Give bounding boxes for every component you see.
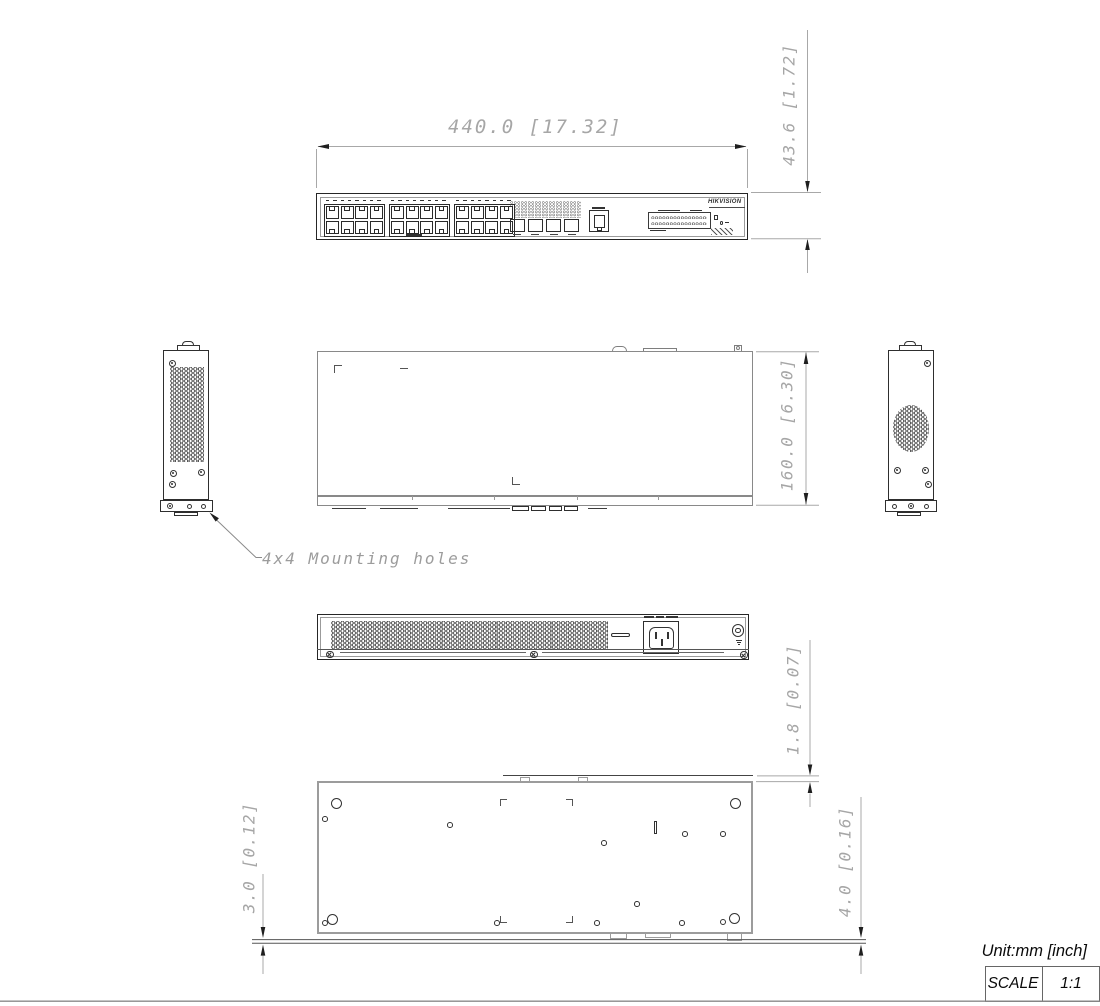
rear-screw-left <box>326 651 334 659</box>
top-view-front-strip <box>317 496 753 506</box>
left-side-top-tab <box>177 345 200 351</box>
rj45-port <box>355 221 368 234</box>
console-port-tab <box>597 227 602 231</box>
dim-bracket-label: 3.0 [0.12] <box>240 793 259 923</box>
bottom-hole-br-small <box>720 919 726 925</box>
bottom-mark-bl <box>500 916 507 923</box>
rj45-port <box>391 221 404 234</box>
right-screw-4 <box>925 481 932 488</box>
rear-screw-center <box>530 651 538 659</box>
bottom-slot <box>654 821 657 835</box>
rear-lip-line <box>317 649 749 650</box>
rj45-port <box>471 206 484 219</box>
port-number-smudge <box>391 200 394 202</box>
rj45-port <box>326 206 339 219</box>
power-indicator-icon <box>720 221 724 225</box>
right-side-vent <box>893 405 930 452</box>
port-number-smudge <box>463 200 466 202</box>
rear-recess-left <box>340 652 526 653</box>
ac-pin-left <box>655 632 657 639</box>
bottom-mark-tl <box>500 799 507 806</box>
right-screw-1 <box>924 360 931 367</box>
bottom-lip-line <box>503 775 753 776</box>
scale-label: SCALE <box>984 975 1042 993</box>
rj45-port <box>420 206 433 219</box>
rear-recess-right <box>542 652 724 653</box>
bottom-hole-bl-small <box>322 920 328 926</box>
port-number-smudge <box>456 200 459 202</box>
rj45-port <box>341 221 354 234</box>
bottom-hole-1 <box>322 816 328 822</box>
sfp-label-smudge <box>568 234 576 235</box>
top-view-outline <box>317 351 753 496</box>
rj45-port <box>406 221 419 234</box>
port-number-smudge <box>420 200 423 202</box>
left-screw-2 <box>170 470 177 477</box>
left-screw-3 <box>198 469 205 476</box>
dim-foot-label: 4.0 [0.16] <box>836 797 855 927</box>
rj45-port <box>485 206 498 219</box>
left-screw-1 <box>169 360 176 367</box>
led-row-bottom <box>651 222 707 226</box>
bottom-mark-br <box>566 916 573 923</box>
power-rating-smudge-2 <box>656 616 664 618</box>
rear-vent <box>331 621 608 650</box>
rj45-port <box>420 221 433 234</box>
rj45-port <box>435 221 448 234</box>
left-foot <box>174 512 198 516</box>
right-screw-3 <box>922 467 929 474</box>
rj45-port <box>370 206 383 219</box>
top-edge-screw-circle <box>736 346 740 350</box>
rj45-port <box>341 206 354 219</box>
rear-vent-divider-1 <box>386 621 387 650</box>
left-side-top-bump <box>182 341 194 345</box>
rj45-port <box>355 206 368 219</box>
top-mark-corner-1 <box>334 365 342 373</box>
port-number-smudge <box>406 200 409 202</box>
bottom-hole-7 <box>594 920 600 926</box>
ac-pin-center <box>661 639 663 646</box>
model-text-smudge <box>709 207 745 209</box>
left-flange-hole-1 <box>187 504 192 509</box>
right-side-top-tab <box>899 345 922 351</box>
bottom-foot-bump-3 <box>727 934 742 942</box>
strip-mark-4 <box>588 508 607 510</box>
dim-lip-extension-lines <box>756 776 819 782</box>
dim-depth-label: 160.0 [6.30] <box>778 350 797 500</box>
strip-tick-4 <box>658 496 659 500</box>
led-mode-square <box>714 215 719 220</box>
port-number-smudge <box>471 200 474 202</box>
strip-mark-3 <box>448 508 510 510</box>
rear-screw-right <box>740 651 748 659</box>
rj45-port <box>485 221 498 234</box>
right-foot <box>897 512 921 516</box>
rj45-port <box>326 221 339 234</box>
power-rating-smudge-3 <box>666 616 678 618</box>
port-number-smudge <box>377 200 380 202</box>
dim-width-extension-lines <box>317 149 748 188</box>
front-vent-dot-grid <box>510 201 581 218</box>
rj45-port <box>370 221 383 234</box>
unit-label: Unit:mm [inch] <box>955 942 1087 962</box>
ground-symbol-2 <box>737 642 741 643</box>
dim-height-extension-lines <box>751 193 821 239</box>
led-label-smudge-1 <box>658 210 680 211</box>
ground-symbol-1 <box>736 640 742 641</box>
dim-width-label: 440.0 [17.32] <box>448 116 608 136</box>
bottom-hole-2 <box>447 822 453 828</box>
rear-vent-divider-4 <box>551 621 552 650</box>
ground-symbol-3 <box>738 644 740 645</box>
technical-drawing-sheet: HIKVISION <box>0 0 1100 1006</box>
port-number-smudge <box>493 200 496 202</box>
bottom-bracket-lines <box>252 940 866 944</box>
port-number-smudge <box>370 200 373 202</box>
port-number-smudge <box>413 200 416 202</box>
power-indicator-dash <box>725 222 729 223</box>
rj45-port <box>456 206 469 219</box>
right-screw-2 <box>894 467 901 474</box>
strip-tick-2 <box>494 496 495 500</box>
bottom-hole-3 <box>601 840 607 846</box>
leader-line <box>214 518 262 558</box>
led-label-smudge-3 <box>650 230 666 231</box>
rj45-port <box>456 221 469 234</box>
rj45-port <box>500 206 513 219</box>
dim-lip-label: 1.8 [0.07] <box>784 635 803 765</box>
left-screw-4 <box>169 481 176 488</box>
strip-box-1 <box>512 506 529 511</box>
brand-logo: HIKVISION <box>708 199 748 206</box>
led-label-smudge-2 <box>690 210 702 211</box>
port-number-smudge <box>435 200 438 202</box>
strip-box-4 <box>564 506 578 511</box>
rear-slot <box>611 633 630 637</box>
port-number-smudge <box>333 200 336 202</box>
top-edge-bump <box>612 346 627 351</box>
console-label-smudge <box>592 207 605 209</box>
bottom-foot-hole-tr <box>730 798 741 809</box>
bottom-mark-tr <box>566 799 573 806</box>
bottom-foot-hole-br <box>729 913 740 924</box>
port-number-smudge <box>398 200 401 202</box>
port-number-smudge <box>363 200 366 202</box>
bottom-foot-hole-tl <box>331 798 342 809</box>
right-flange-hole-1 <box>892 504 897 509</box>
port-number-smudge <box>326 200 329 202</box>
bottom-foot-bump-1 <box>610 934 627 939</box>
port-number-smudge <box>500 200 503 202</box>
left-flange-hole-2 <box>201 504 206 509</box>
left-side-vent <box>170 367 204 462</box>
top-mark-corner-2 <box>512 477 520 485</box>
port-number-smudge <box>507 200 510 202</box>
bottom-foot-bump-2 <box>645 934 671 938</box>
bottom-hole-9 <box>679 920 685 926</box>
strip-box-2 <box>531 506 546 511</box>
sfp-label-smudge <box>550 234 558 235</box>
strip-mark-2 <box>380 508 418 510</box>
right-side-top-bump <box>904 341 916 345</box>
bottom-hole-6 <box>494 920 500 926</box>
sfp-slot-3 <box>546 219 561 232</box>
port-number-smudge <box>355 200 358 202</box>
hatch-mark <box>711 228 733 235</box>
sfp-label-smudge <box>531 234 539 235</box>
rear-vent-divider-2 <box>441 621 442 650</box>
ac-pin-right <box>667 632 669 639</box>
port-number-smudge <box>442 200 445 202</box>
scale-value: 1:1 <box>1042 975 1100 993</box>
right-flange-hole-2 <box>924 504 929 509</box>
bottom-view-outline <box>317 781 753 934</box>
strip-tick-3 <box>577 496 578 500</box>
bottom-hole-8 <box>634 901 640 907</box>
rj45-port <box>471 221 484 234</box>
top-mark-dash <box>400 368 408 369</box>
top-edge-tab <box>643 348 677 352</box>
port-number-smudge <box>485 200 488 202</box>
bottom-foot-hole-bl <box>327 914 338 925</box>
dim-height-label: 43.6 [1.72] <box>780 35 799 175</box>
rj45-port <box>406 206 419 219</box>
rj45-port <box>391 206 404 219</box>
sfp-slot-2 <box>528 219 543 232</box>
bottom-hole-5 <box>720 831 726 837</box>
port-number-smudge <box>348 200 351 202</box>
strip-box-3 <box>549 506 562 511</box>
port-number-smudge <box>341 200 344 202</box>
rj45-port <box>435 206 448 219</box>
port-number-smudge <box>428 200 431 202</box>
strip-mark-1 <box>332 508 366 510</box>
sfp-slot-1 <box>510 219 525 232</box>
rear-vent-divider-3 <box>496 621 497 650</box>
sfp-slot-4 <box>564 219 579 232</box>
led-panel <box>648 212 711 229</box>
ground-screw-inner <box>735 628 741 634</box>
port-number-smudge <box>478 200 481 202</box>
sfp-label-smudge <box>513 234 521 235</box>
mounting-holes-note: 4x4 Mounting holes <box>262 549 482 569</box>
power-rating-smudge-1 <box>644 616 654 618</box>
bottom-hole-4 <box>682 831 688 837</box>
led-row-top <box>651 216 707 220</box>
strip-tick-1 <box>412 496 413 500</box>
